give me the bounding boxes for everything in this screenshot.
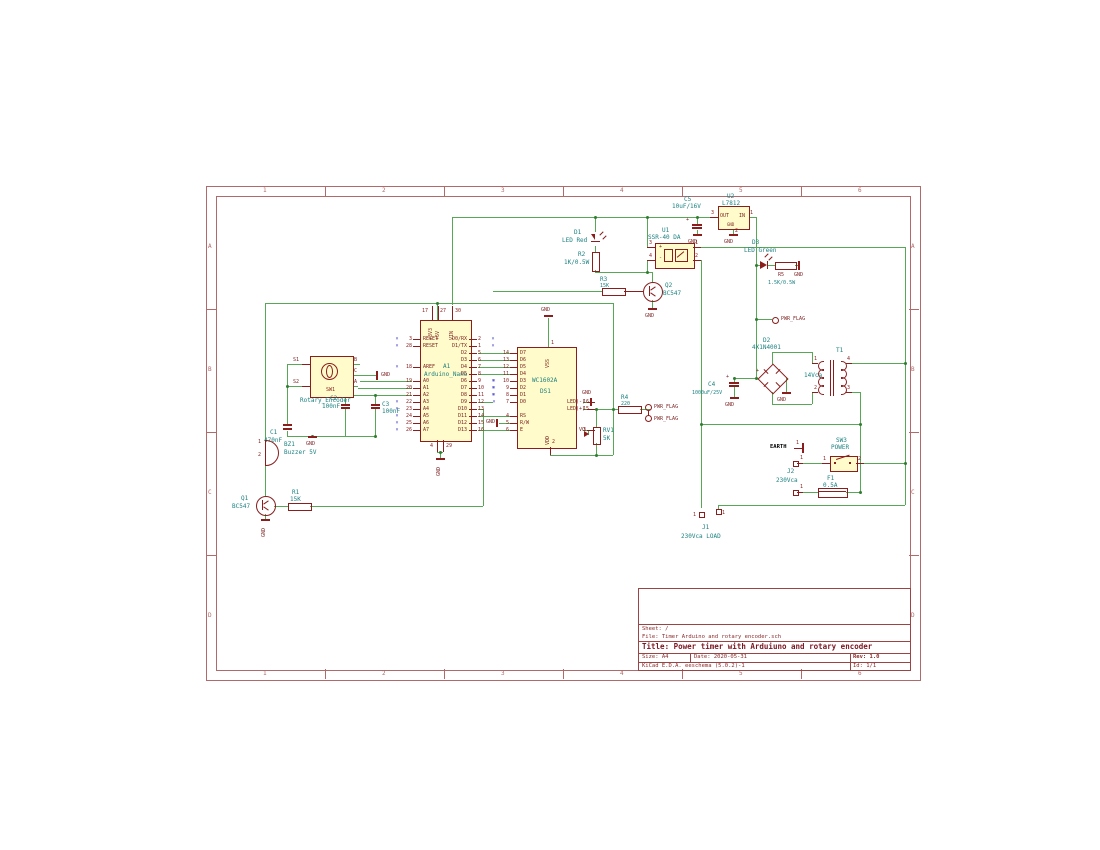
d2-value: 4X1N4001 (752, 345, 781, 351)
symbol-bar (730, 397, 739, 399)
pin-name: D6 (430, 379, 469, 384)
pwr-flag-icon (645, 415, 652, 422)
pin-number: 6 (497, 428, 510, 433)
pin-name: S1 (293, 358, 299, 363)
pin-stub (469, 423, 477, 424)
symbol-line (649, 286, 650, 296)
wire (701, 424, 860, 425)
pin-stub (413, 339, 421, 340)
pin-stub (413, 416, 421, 417)
frame-tick (563, 186, 564, 196)
pin-number: 3 (847, 386, 850, 391)
pin-number: 9 (477, 379, 490, 384)
pin-number: 1 (693, 513, 696, 518)
tool-version: KiCad E.D.A. eeschema (5.0.2)-1 (642, 662, 745, 670)
frame-tick (206, 555, 216, 556)
pin-name: VDD (546, 436, 551, 445)
pin-number: 22 (400, 400, 413, 405)
wire (265, 303, 613, 304)
pin-number: 30 (455, 309, 461, 314)
frame-col-label: 3 (501, 188, 505, 194)
junction-dot (646, 216, 649, 219)
pin-stub (469, 430, 477, 431)
q2-transistor[interactable] (643, 282, 663, 302)
titleblock-line (639, 624, 910, 625)
pin-name: VO (535, 428, 587, 433)
pin-number: 9 (497, 386, 510, 391)
pin-row: ×8D1 (491, 392, 567, 399)
frame-col-label: 6 (858, 188, 862, 194)
pin-number: 11 (497, 372, 510, 377)
pin-name: A (354, 380, 357, 385)
pin-stub (469, 339, 477, 340)
pin-name: D5 (518, 365, 526, 370)
pin-name: RS (518, 414, 526, 419)
net-label: GND (306, 442, 315, 447)
frame-row-label: B (911, 367, 915, 373)
net-label: + (756, 369, 759, 374)
r2-value: 1K/0.5W (564, 260, 589, 266)
pin-number: 2 (814, 386, 817, 391)
net-label: PWR_FLAG (781, 317, 805, 322)
junction-dot (733, 377, 736, 380)
pin-number: 1 (796, 441, 799, 446)
frame-row-label: C (208, 490, 212, 496)
symbol-bar (591, 241, 600, 242)
no-connect-icon: × (490, 344, 496, 349)
pin-number: 11 (477, 393, 490, 398)
junction-dot (595, 408, 598, 411)
pwr-flag-icon (772, 317, 779, 324)
wire (652, 272, 653, 282)
pin-number: 2 (477, 337, 490, 342)
symbol-line (846, 392, 852, 393)
symbol-bar (729, 234, 738, 236)
symbol-line (550, 447, 551, 455)
r4-resistor (618, 406, 642, 414)
pin-number: 12 (477, 400, 490, 405)
pin-stub (413, 402, 421, 403)
q1-ref: Q1 (241, 496, 248, 502)
pin-row: 7D4 (430, 364, 496, 371)
symbol-outline (818, 385, 824, 395)
symbol-bar (692, 224, 702, 226)
sw3-value: POWER (831, 445, 849, 451)
d1-led (591, 234, 595, 240)
pin-stub (469, 395, 477, 396)
net-label: R5 (778, 273, 784, 278)
wire (862, 463, 905, 464)
pin-name: A5 (421, 414, 429, 419)
pin-number: 5 (477, 351, 490, 356)
pin-number: 10 (477, 386, 490, 391)
c2-value: 100nF (322, 404, 340, 410)
r3-value: 15K (600, 283, 609, 289)
symbol-line (812, 363, 818, 364)
diode-icon (584, 431, 589, 437)
pin-stub (413, 430, 421, 431)
net-label: GND (724, 240, 733, 245)
pin-number: 2 (695, 254, 698, 259)
symbol-bar (729, 382, 739, 384)
pin-name: D11 (430, 414, 469, 419)
symbol-bar (692, 227, 702, 229)
wire (287, 436, 375, 437)
pin-stub (469, 367, 477, 368)
d1-value: LED Red (562, 238, 587, 244)
pin-stub (413, 388, 421, 389)
symbol-bar (782, 392, 791, 394)
pin-stub (510, 381, 518, 382)
no-connect-icon: × (490, 337, 496, 342)
wire (287, 431, 288, 436)
q1-value: BC547 (232, 504, 250, 510)
symbol-bar (849, 462, 851, 464)
pin-stub (510, 353, 518, 354)
u1-value: SSR-40 DA (648, 235, 681, 241)
pin-row: ×9D2 (491, 385, 567, 392)
frame-tick (909, 432, 919, 433)
net-label: GND (541, 308, 550, 313)
frame-tick (909, 309, 919, 310)
d3-ref: D3 (752, 240, 759, 246)
pin-name: LED(-) (535, 400, 587, 405)
bz1-value: Buzzer 5V (284, 450, 317, 456)
frame-col-label: 3 (501, 671, 505, 677)
symbol-line (624, 291, 643, 292)
frame-tick (325, 669, 326, 679)
wire (596, 409, 597, 427)
pin-name: A0 (421, 379, 429, 384)
symbol-bar (371, 404, 380, 406)
pin-name: D12 (430, 421, 469, 426)
symbol-line (797, 463, 803, 464)
wire (452, 217, 710, 218)
pin-name: C (354, 369, 357, 374)
frame-col-label: 1 (263, 188, 267, 194)
symbol-bar (767, 261, 768, 269)
junction-dot (439, 451, 442, 454)
symbol-line (822, 463, 830, 464)
pin-row: 12D9 (430, 399, 496, 406)
pin-row: ×9D6 (430, 378, 496, 385)
junction-dot (436, 302, 439, 305)
wire (375, 408, 376, 436)
power-switch-symbol[interactable] (830, 456, 858, 472)
frame-row-label: D (208, 613, 212, 619)
pin-number: 28 (400, 344, 413, 349)
pin-number: 2 (258, 453, 261, 458)
symbol-bar (693, 234, 702, 236)
pin-stub (510, 423, 518, 424)
symbol-bar (436, 458, 445, 460)
pin-stub (469, 409, 477, 410)
pin-row: ×10D7 (430, 385, 496, 392)
r2-resistor (592, 252, 600, 272)
pin-stub (510, 360, 518, 361)
frame-tick (444, 186, 445, 196)
pin-number: 4 (430, 444, 433, 449)
symbol-bar (496, 419, 498, 427)
pin-stub (413, 381, 421, 382)
frame-col-label: 2 (382, 671, 386, 677)
symbol-bar (729, 385, 739, 387)
junction-dot (595, 454, 598, 457)
wire (274, 506, 288, 507)
pin-number: 2 (858, 457, 861, 462)
pin-number: 7 (477, 365, 490, 370)
pin-number: 8 (497, 393, 510, 398)
lcd-pin-led-minus: 16LED(-) (535, 399, 595, 406)
net-label: GND (381, 373, 390, 378)
pin-name: D13 (430, 428, 469, 433)
frame-col-label: 5 (739, 671, 743, 677)
pin-name: D7 (518, 351, 526, 356)
symbol-line (818, 491, 846, 492)
pin-row: ×10D3 (491, 378, 567, 385)
pin-name: D1/TX (430, 344, 469, 349)
pin-name: A6 (421, 421, 429, 426)
pin-stub (510, 402, 518, 403)
frame-row-label: A (911, 244, 915, 250)
pin-number: 2 (552, 440, 555, 445)
pin-number: 4 (847, 357, 850, 362)
r4-value: 220 (621, 401, 630, 407)
pin-name: A4 (421, 407, 429, 412)
pin-name: D3 (518, 379, 526, 384)
sheet-rev: Rev: 1.0 (853, 653, 880, 661)
pin-number: 20 (400, 386, 413, 391)
pin-number: 1 (823, 457, 826, 462)
r1-resistor (288, 503, 312, 511)
f1-value: 0.5A (823, 483, 837, 489)
j2-ref: J2 (787, 469, 794, 475)
c5-value: 10uF/16V (672, 204, 701, 210)
symbol-line (846, 363, 852, 364)
q1-transistor[interactable] (256, 496, 276, 516)
pin-number: 1 (814, 357, 817, 362)
symbol-bar (802, 443, 804, 453)
pin-name: D8 (430, 393, 469, 398)
pin-name: D4 (518, 372, 526, 377)
wire (718, 505, 905, 506)
pin-row: ×11D8 (430, 392, 496, 399)
pin-row: 12D5 (491, 364, 567, 371)
wire (647, 217, 648, 247)
sheet-size: Size: A4 (642, 653, 669, 661)
pin-row: 13D6 (491, 357, 567, 364)
wire (548, 318, 549, 347)
pin-stub (510, 430, 518, 431)
symbol-bar (648, 308, 657, 310)
pin-number: 10 (497, 379, 510, 384)
pin-number: 1 (722, 511, 725, 516)
pin-number: 16 (477, 428, 490, 433)
frame-tick (206, 432, 216, 433)
pin-row: 5D2 (430, 350, 496, 357)
pin-stub (510, 388, 518, 389)
pin-number: 17 (422, 309, 428, 314)
junction-dot (904, 462, 907, 465)
titleblock-line (690, 653, 691, 662)
j1-pin (699, 512, 705, 518)
symbol-bar (376, 371, 378, 380)
wire (846, 492, 860, 493)
pin-number: 23 (400, 407, 413, 412)
wire (734, 387, 735, 397)
pin-number: 4 (649, 254, 652, 259)
pin-stub (413, 346, 421, 347)
symbol-bar (544, 315, 553, 317)
pin-number: 27 (440, 309, 446, 314)
wire (812, 392, 813, 404)
d3-led (760, 261, 767, 269)
r5-value: 1.5K/0.5W (768, 280, 795, 286)
pin-row: 16D13 (430, 427, 496, 434)
wire (860, 392, 861, 492)
net-label: GND (725, 403, 734, 408)
pin-name: IN (739, 214, 745, 219)
wire (803, 492, 818, 493)
frame-col-label: 4 (620, 671, 624, 677)
net-label: - (659, 256, 662, 261)
symbol-line (438, 306, 439, 320)
pin-stub (413, 367, 421, 368)
q2-ref: Q2 (665, 283, 672, 289)
pin-name: D1 (518, 393, 526, 398)
pin-stub (469, 374, 477, 375)
pin-number: 16 (582, 400, 595, 405)
symbol-bar (834, 462, 836, 464)
frame-tick (909, 555, 919, 556)
frame-tick (563, 669, 564, 679)
pin-name: VSS (546, 359, 551, 368)
pin-number: 1 (258, 440, 261, 445)
encoder-ref: SW1 (326, 388, 335, 393)
pin-name: D9 (430, 400, 469, 405)
pin-number: 1 (551, 341, 554, 346)
symbol-line (437, 440, 438, 452)
pin-number: 4 (497, 414, 510, 419)
junction-dot (700, 423, 703, 426)
f1-fuse (818, 488, 848, 498)
pin-number: 8 (477, 372, 490, 377)
junction-dot (374, 394, 377, 397)
wire (772, 352, 812, 353)
pin-number: 26 (400, 428, 413, 433)
pin-number: 1 (750, 211, 753, 216)
frame-col-label: 2 (382, 188, 386, 194)
j1-ref: J1 (702, 525, 709, 531)
pin-name: OUT (720, 214, 729, 219)
c4-value: 1000uF/25V (692, 390, 722, 396)
pin-stub (469, 353, 477, 354)
pin-name: D3 (430, 358, 469, 363)
pin-name: LED(+) (535, 407, 587, 412)
pin-name: E (518, 428, 523, 433)
symbol-line (710, 217, 718, 218)
net-label: PWR_FLAG (654, 405, 678, 410)
file-name: File: Timer Arduino and rotary encoder.s… (642, 633, 781, 641)
pin-name: GND (727, 222, 734, 227)
wire (345, 408, 346, 436)
pin-number: 6 (477, 358, 490, 363)
junction-dot (612, 408, 615, 411)
j1-value: 230Vca LOAD (681, 534, 721, 540)
pin-name: A1 (421, 386, 429, 391)
pin-stub (469, 402, 477, 403)
frame-tick (325, 186, 326, 196)
pin-stub (413, 409, 421, 410)
wire (812, 352, 813, 363)
net-label: + (686, 218, 689, 223)
pin-name: D0 (518, 400, 526, 405)
lcd-left-pins: 14D713D612D511D4×10D3×9D2×8D1×7D04RS5R/W… (491, 350, 567, 434)
r3-resistor (602, 288, 626, 296)
pin-stub (510, 395, 518, 396)
wire (287, 364, 288, 424)
wire (310, 506, 483, 507)
pin-stub (469, 416, 477, 417)
pin-stub (469, 360, 477, 361)
frame-col-label: 1 (263, 671, 267, 677)
symbol-line (693, 260, 701, 261)
pin-stub (510, 367, 518, 368)
lcd-pin-led-plus: 15LED(+) (535, 406, 595, 413)
r1-value: 15K (290, 497, 301, 503)
pin-name: S2 (293, 380, 299, 385)
symbol-line (797, 492, 803, 493)
wire (905, 247, 906, 505)
symbol-bar (371, 407, 380, 409)
sheet-date: Date: 2020-05-31 (694, 653, 747, 661)
junction-dot (286, 385, 289, 388)
schematic-sheet: 1 2 3 4 5 6 1 2 3 4 5 6 A B C D A B C D … (0, 0, 1100, 850)
net-label: GND (688, 240, 697, 245)
wire (493, 291, 602, 292)
wire (772, 404, 812, 405)
symbol-line (856, 463, 864, 464)
pin-number: 1 (800, 485, 803, 490)
pin-row: 14D7 (491, 350, 567, 357)
net-label: GND (582, 391, 591, 396)
pin-number: 3 (400, 337, 413, 342)
pin-number: 5 (497, 421, 510, 426)
pin-row: 5R/W (491, 420, 567, 427)
symbol-line (647, 247, 655, 248)
net-label: GND (794, 273, 803, 278)
c1-ref: C1 (270, 430, 277, 436)
pin-number: 1 (477, 344, 490, 349)
junction-dot (594, 216, 597, 219)
pin-number: 29 (446, 444, 452, 449)
symbol-bar (341, 404, 350, 406)
net-label: PWR_FLAG (654, 417, 678, 422)
pin-name: +5V (436, 331, 441, 340)
symbol-bar (341, 407, 350, 409)
pin-number: 13 (497, 358, 510, 363)
pin-name: D2 (430, 351, 469, 356)
net-label: GND (777, 398, 786, 403)
junction-dot (755, 318, 758, 321)
pin-number: 14 (497, 351, 510, 356)
symbol-line (830, 360, 831, 396)
wire (756, 319, 772, 320)
symbol-line (794, 448, 802, 449)
pin-number: 25 (400, 421, 413, 426)
junction-dot (755, 264, 758, 267)
junction-dot (904, 362, 907, 365)
